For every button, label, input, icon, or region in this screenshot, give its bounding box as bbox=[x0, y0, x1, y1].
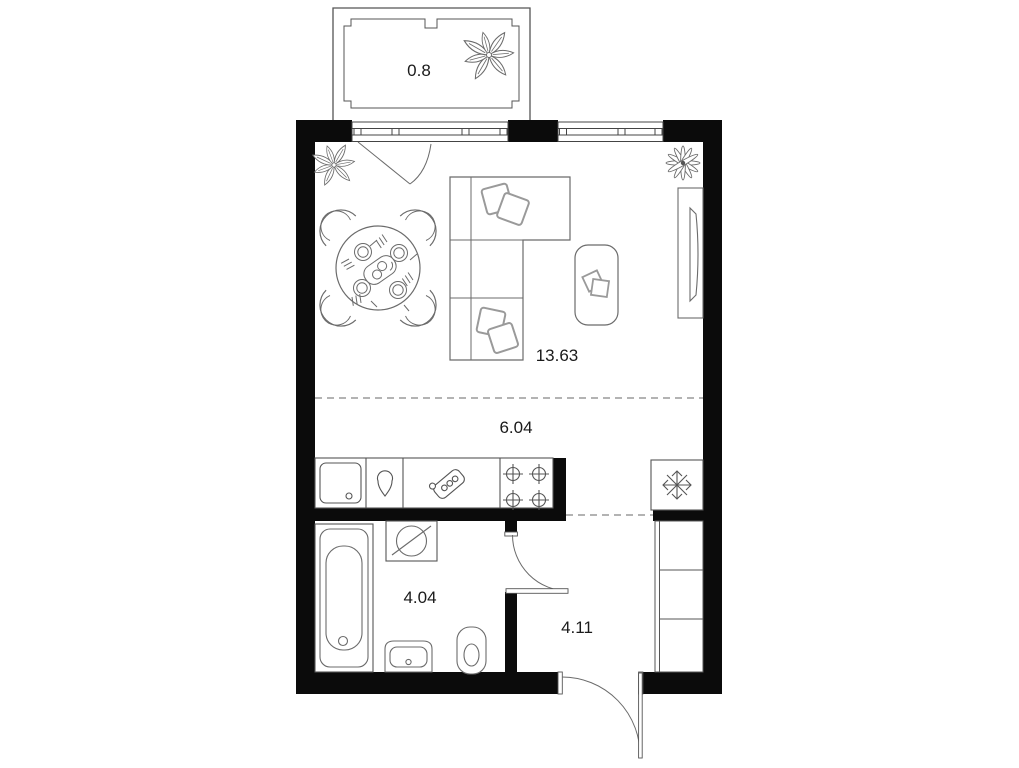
plant-icon bbox=[311, 144, 355, 187]
wall-top-left bbox=[296, 120, 352, 142]
room-label-bathroom: 4.04 bbox=[403, 588, 436, 607]
floor-plan-canvas: 0.8 13.63 6.04 4.04 4.11 bbox=[0, 0, 1019, 768]
kitchen-counter bbox=[315, 458, 553, 510]
fridge-snowflake-icon bbox=[651, 460, 703, 510]
wall-kitchen-bath bbox=[315, 508, 566, 521]
room-label-living: 13.63 bbox=[536, 346, 579, 365]
wall-bottom-right bbox=[643, 672, 722, 694]
tv-stand-icon bbox=[678, 188, 703, 318]
door-leaf bbox=[506, 589, 568, 594]
balcony-door-swing-icon bbox=[358, 142, 431, 184]
kitchen-sink-icon bbox=[320, 463, 361, 503]
coffee-table-icon bbox=[575, 245, 618, 325]
room-label-balcony: 0.8 bbox=[407, 61, 431, 80]
wall-top-pier bbox=[508, 120, 558, 142]
plate-icon bbox=[355, 244, 372, 261]
room-label-hallway: 4.11 bbox=[561, 618, 593, 637]
wall-right bbox=[703, 120, 722, 694]
floor-plan: 0.8 13.63 6.04 4.04 4.11 bbox=[0, 0, 1019, 768]
washing-machine-icon bbox=[386, 521, 437, 561]
wall-left bbox=[296, 120, 315, 694]
toilet-icon bbox=[457, 627, 486, 674]
window-icon bbox=[352, 122, 663, 142]
flower-icon bbox=[666, 146, 700, 180]
wall-stove-stub bbox=[553, 458, 566, 521]
wardrobe-icon bbox=[655, 521, 703, 672]
door-leaf bbox=[639, 673, 643, 758]
wall-bottom-left bbox=[296, 672, 558, 694]
wall-bath-right bbox=[505, 592, 517, 672]
bathroom-door bbox=[505, 532, 569, 593]
tv-icon bbox=[690, 208, 698, 301]
plate-icon bbox=[390, 282, 407, 299]
bathtub-icon bbox=[315, 524, 373, 672]
dining-table-icon bbox=[311, 201, 446, 336]
wall-bath-door-stub-top bbox=[505, 521, 517, 533]
balcony-plant-icon bbox=[462, 30, 514, 80]
entry-door bbox=[558, 672, 643, 758]
corner-sofa-icon bbox=[450, 177, 570, 360]
wall-top-right bbox=[663, 120, 722, 142]
room-label-kitchen: 6.04 bbox=[499, 418, 532, 437]
washbasin-icon bbox=[385, 641, 432, 672]
